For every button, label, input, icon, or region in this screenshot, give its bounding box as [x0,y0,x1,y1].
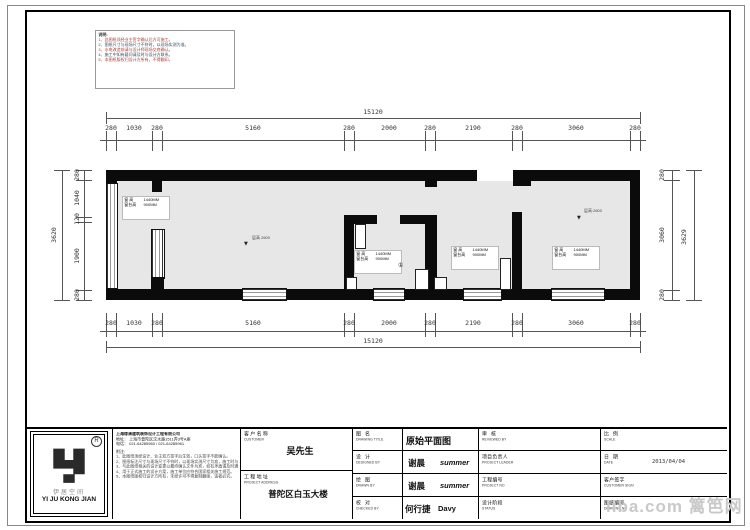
drawing-sheet: 说明: 1、此图纸须经业主签字确认后方可施工。 2、图纸尺寸与现场尺寸不符时，以… [0,0,750,530]
dim-top-seg: 2000 [372,124,406,132]
sill-height-label: 窗台高 [453,253,472,258]
window-label-box-1: 窗 高1440MM 窗台高900MM [122,196,170,220]
wall-stub-top [152,181,162,192]
dim-top-seg: 5160 [236,124,270,132]
window-label-box-3: 窗 高1440MM 窗台高900MM [451,246,499,270]
dim-line-right-inner [672,170,673,300]
dim-top-seg: 280 [500,124,534,132]
dim-bottom-overall: 15120 [356,337,390,345]
checked-by-value-en: Davy [438,504,456,513]
door-leaf-2 [346,277,357,290]
dim-line-top-segments [100,140,646,141]
logo-cn: 伊居空间 [31,487,107,496]
dim-right-seg: 280 [657,155,667,195]
drawing-title-value: 原始平面图 [406,434,451,447]
dim-line-right-outer [694,170,695,300]
dim-bottom-seg: 280 [413,319,447,327]
customer-value: 吴先生 [250,444,350,457]
door-leaf-5 [500,258,511,290]
date-label: 日 期DATE [604,453,750,478]
corner-note-line: 5、本图纸版权归设计方所有，不得翻印。 [98,58,151,63]
level-marker-icon: ▼ [244,241,248,247]
logo-cell: R 伊居空间 YI JU KONG JIAN [30,431,108,517]
scale-label: 比 例SCALE [604,430,750,455]
door-leaf-4 [434,277,447,290]
wall-b-right [400,215,425,224]
watermark: liba.com 篱笆网 [606,492,750,517]
wall-d [512,212,522,289]
door-leaf-3 [415,269,429,290]
note-line: 5、本图纸版权归设计方所有，未经许可不得复制翻版，违者必究。 [116,474,236,479]
dim-line-bottom-segments [100,331,646,332]
wall-right [630,170,640,300]
window-left-wall [106,183,118,289]
company-info-cell: 上海缘清建筑装饰设计工程有限公司 地址： 上海市普陀区汶水路1511弄3号A座 … [116,432,238,517]
entrance-opening [477,170,513,181]
dim-bottom-seg: 2190 [456,319,490,327]
wall-top-right [513,170,640,181]
dim-left-seg: 280 [72,275,82,315]
dim-top-seg: 2190 [456,124,490,132]
door-leaf-1 [355,224,366,249]
designed-by-value-cn: 谢晨 [408,457,425,469]
dim-top-overall: 15120 [356,108,390,116]
dim-right-seg: 3060 [657,215,667,255]
sill-height-label: 窗台高 [554,253,573,258]
logo-glyph [47,445,91,485]
corner-notes-box: 说明: 1、此图纸须经业主签字确认后方可施工。 2、图纸尺寸与现场尺寸不符时，以… [95,30,235,89]
window-bottom-1 [242,288,287,301]
date-value: 2013/04/04 [652,459,685,465]
sill-height-value: 900MM [144,203,170,208]
wall-top-left [106,170,477,181]
dim-bottom-seg: 280 [500,319,534,327]
dim-right-seg: 280 [657,275,667,315]
dim-left-seg: 120 [72,199,82,239]
drawn-by-value-cn: 谢晨 [408,480,425,492]
wall-c-stub [425,181,437,187]
registered-mark: R [91,436,102,447]
dim-top-seg: 3060 [559,124,593,132]
project-address-value: 普陀区白玉大楼 [246,488,350,500]
interior-window-pier [151,229,165,279]
dim-top-seg: 280 [413,124,447,132]
dim-left-seg: 1900 [72,236,82,276]
dim-left-overall: 3620 [49,215,59,255]
dim-bottom-seg: 280 [140,319,174,327]
dim-top-seg: 280 [140,124,174,132]
window-bottom-4 [551,288,605,301]
dim-line-left-inner [84,170,85,300]
dim-right-overall: 3629 [679,217,689,257]
drawn-by-value-en: summer [440,481,469,490]
checked-by-value-cn: 何行捷 [405,503,431,515]
sill-height-label: 窗台高 [124,203,143,208]
wall-b-left [354,215,377,224]
dim-top-seg: 280 [618,124,652,132]
logo-en: YI JU KONG JIAN [31,496,107,503]
wall-pier-stub [151,277,164,289]
designed-by-value-en: summer [440,458,469,467]
wall-top-corner-chunk [513,181,531,186]
window-label-box-4: 窗 高1440MM 窗台高900MM [552,246,600,270]
sill-height-value: 900MM [574,253,600,258]
sill-height-label: 窗台高 [356,257,375,262]
dim-bottom-seg: 2000 [372,319,406,327]
dim-line-left-outer [62,170,63,300]
sill-height-value: 900MM [473,253,499,258]
window-bottom-2 [373,288,405,301]
circle-number-marker: ① [398,262,403,269]
window-label-box-2: 窗 高1440MM 窗台高900MM [354,250,402,274]
dim-bottom-seg: 280 [618,319,652,327]
dim-bottom-seg: 280 [332,319,366,327]
window-bottom-3 [463,288,502,301]
dim-line-top-overall [106,118,640,119]
dim-top-seg: 280 [332,124,366,132]
level-marker-icon: ▼ [577,215,581,221]
dim-line-bottom-overall [106,347,640,348]
dim-bottom-seg: 3060 [559,319,593,327]
dim-bottom-seg: 5160 [236,319,270,327]
